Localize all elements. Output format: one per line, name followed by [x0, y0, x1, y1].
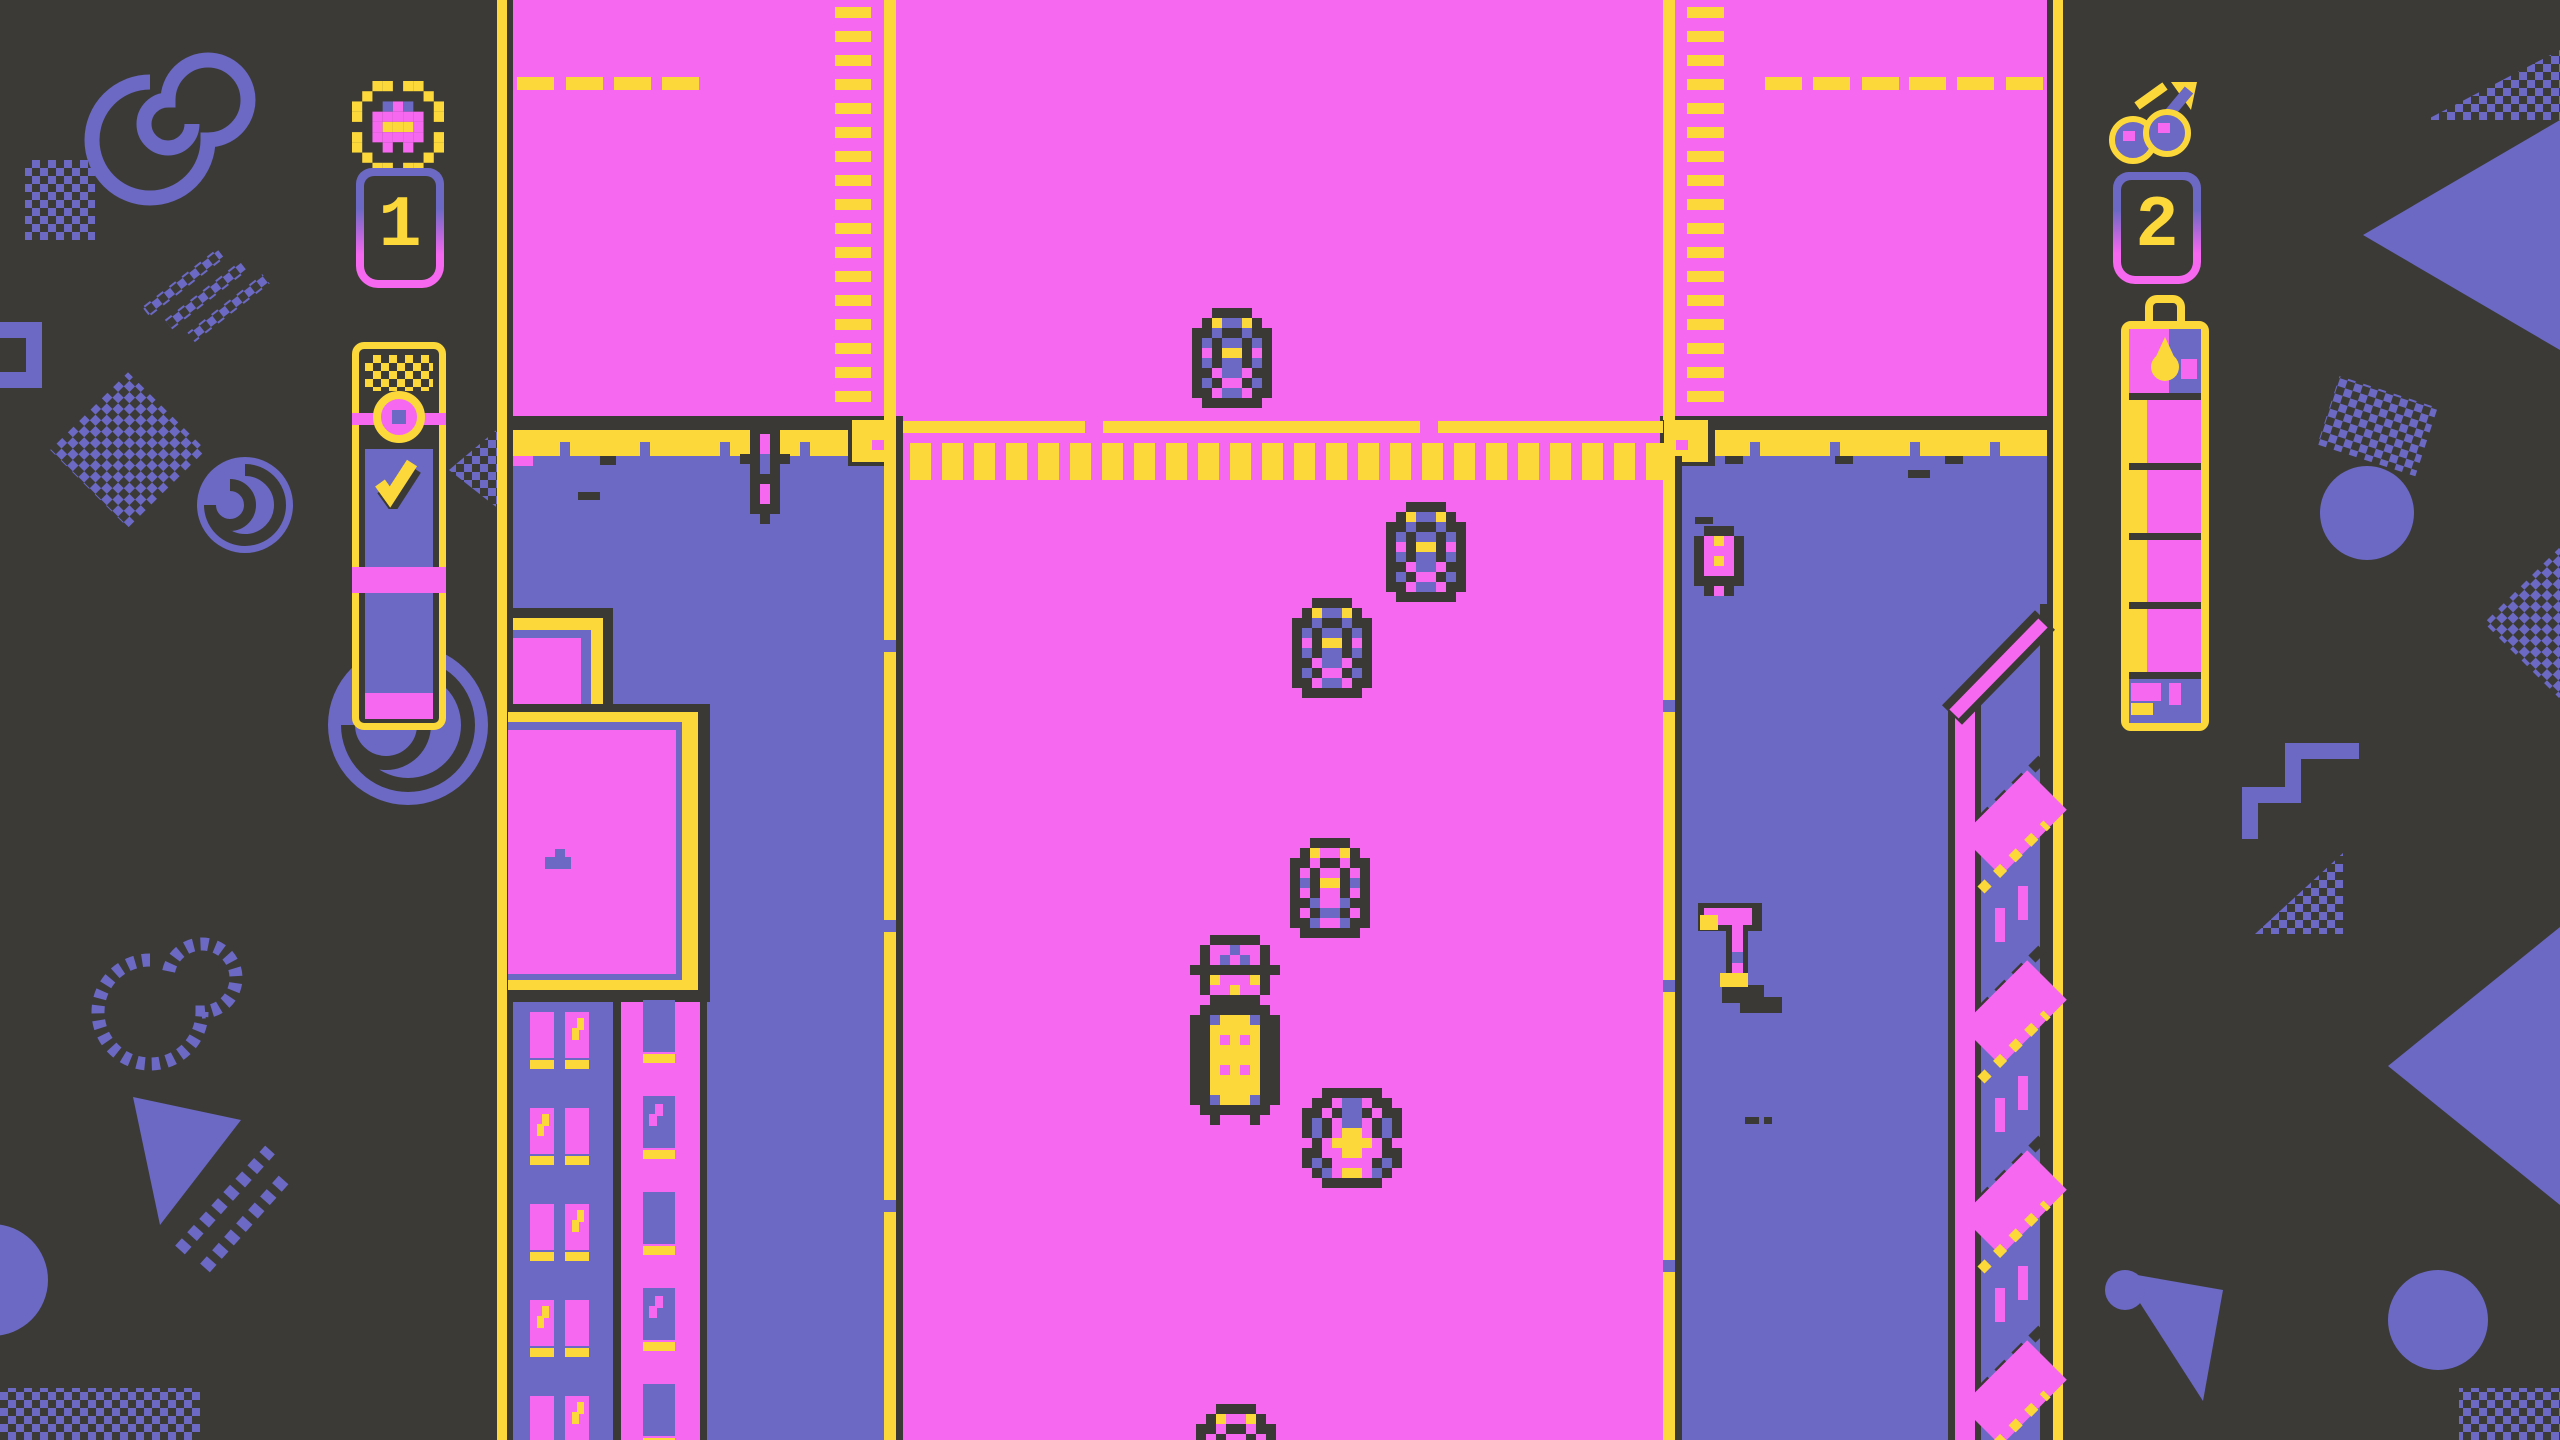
fire-hydrant	[1694, 526, 1744, 596]
game-window: 1	[0, 0, 2560, 1440]
game-screen[interactable]	[0, 0, 2560, 1440]
truck	[1190, 935, 1280, 1125]
crosswalk-vertical-right	[1663, 0, 1675, 420]
crosswalk-vertical-left	[884, 0, 896, 420]
traffic-car-4	[1290, 838, 1370, 938]
traffic-car-2	[1386, 502, 1466, 602]
screen-edge-left	[497, 0, 507, 1440]
player-car	[1302, 1088, 1402, 1188]
traffic-car-1	[1192, 308, 1272, 408]
screen-edge-right	[2053, 0, 2063, 1440]
crosswalk-band	[903, 421, 1663, 433]
traffic-car-3	[1292, 598, 1372, 698]
